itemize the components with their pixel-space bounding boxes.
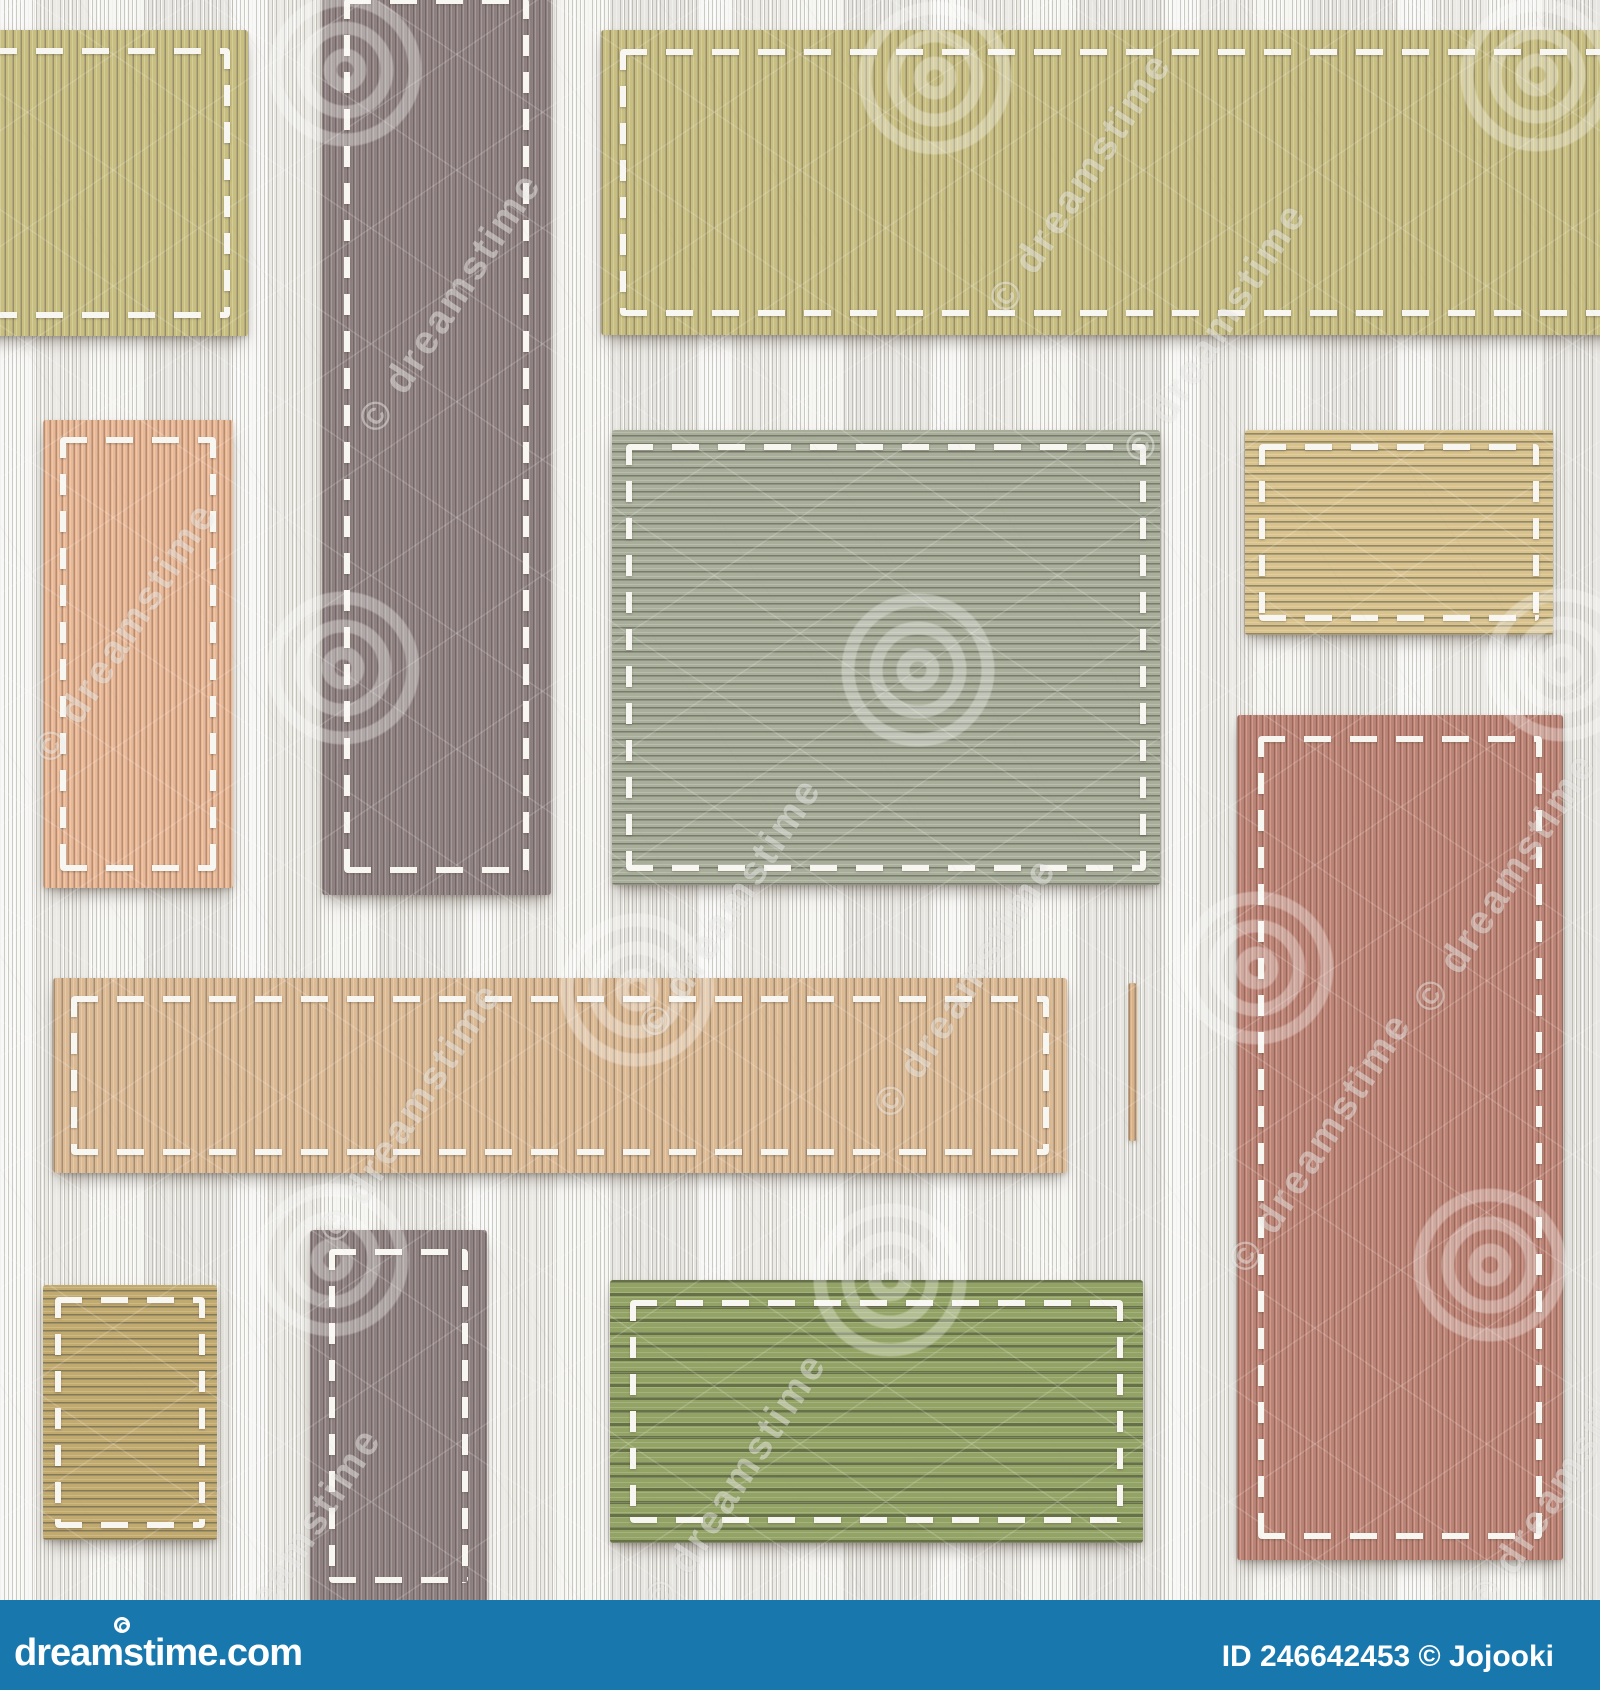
- dreamstime-logo-text: dreamstime.com: [14, 1632, 302, 1674]
- patch-mauve-band-top: [322, 0, 551, 895]
- stitch-border: [1258, 736, 1542, 1539]
- patch-moss-rect-bottom: [610, 1280, 1143, 1543]
- stitch-border: [55, 1297, 205, 1528]
- artwork: © dreamstime© dreamstime© dreamstime© dr…: [0, 0, 1600, 1600]
- stitch-border: [620, 49, 1600, 316]
- dreamstime-logo: dreamstime.com: [14, 1634, 302, 1672]
- dreamstime-spiral-icon: [114, 1617, 130, 1633]
- stock-photo-image: © dreamstime© dreamstime© dreamstime© dr…: [0, 0, 1600, 1690]
- stitch-border: [1259, 444, 1539, 621]
- stitch-border: [630, 1300, 1123, 1523]
- footer-bar: dreamstime.com ID 246642453 © Jojooki: [0, 1600, 1600, 1690]
- patch-terracotta-rect-right: [1237, 715, 1563, 1560]
- patch-sage-square-center: [612, 430, 1160, 885]
- image-credit: ID 246642453 © Jojooki: [1222, 1640, 1554, 1674]
- stitch-border: [60, 437, 216, 871]
- patch-olive-top-left: [0, 30, 248, 336]
- patch-tan-band-middle: [53, 978, 1067, 1173]
- stitch-border: [0, 48, 230, 318]
- patch-mauve-band-bottom: [310, 1230, 487, 1600]
- patch-khaki-rect-bottom-left: [43, 1285, 217, 1540]
- stitch-border: [626, 444, 1146, 871]
- stitch-border: [329, 1249, 468, 1583]
- stitch-border: [71, 996, 1049, 1155]
- patch-tan-sliver: [1128, 983, 1137, 1141]
- patch-olive-top-right: [601, 30, 1600, 335]
- stitch-border: [344, 0, 529, 873]
- patch-khaki-rect-top-right: [1245, 430, 1553, 635]
- patch-peach-rect-left: [43, 420, 233, 888]
